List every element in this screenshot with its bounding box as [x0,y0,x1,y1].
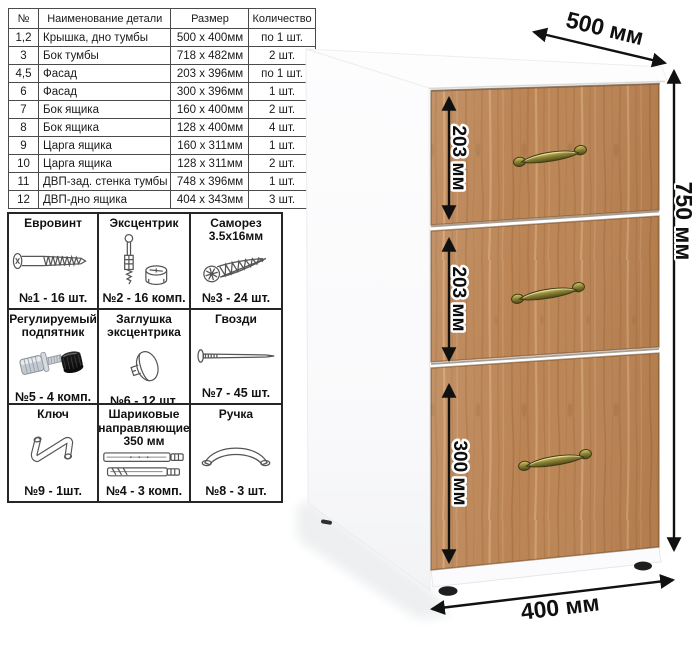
cabinet-side-panel [306,49,430,590]
drawer-1-dimension-label: 203 мм [448,125,469,190]
cabinet-foot-front-right [634,562,652,571]
assembly-instruction-page: № Наименование детали Размер Количество … [0,0,700,648]
depth-dimension-label: 500 мм [564,6,647,50]
width-dimension-label: 400 мм [519,589,600,624]
cabinet-foot-front-left [439,586,458,596]
drawer-2-dimension-label: 203 мм [448,266,469,331]
cabinet-illustration: 500 мм 750 мм 400 мм 203 мм 203 мм 300 м… [0,0,700,648]
drawer-3-dimension-label: 300 мм [449,440,470,505]
height-dimension-label: 750 мм [671,182,697,261]
